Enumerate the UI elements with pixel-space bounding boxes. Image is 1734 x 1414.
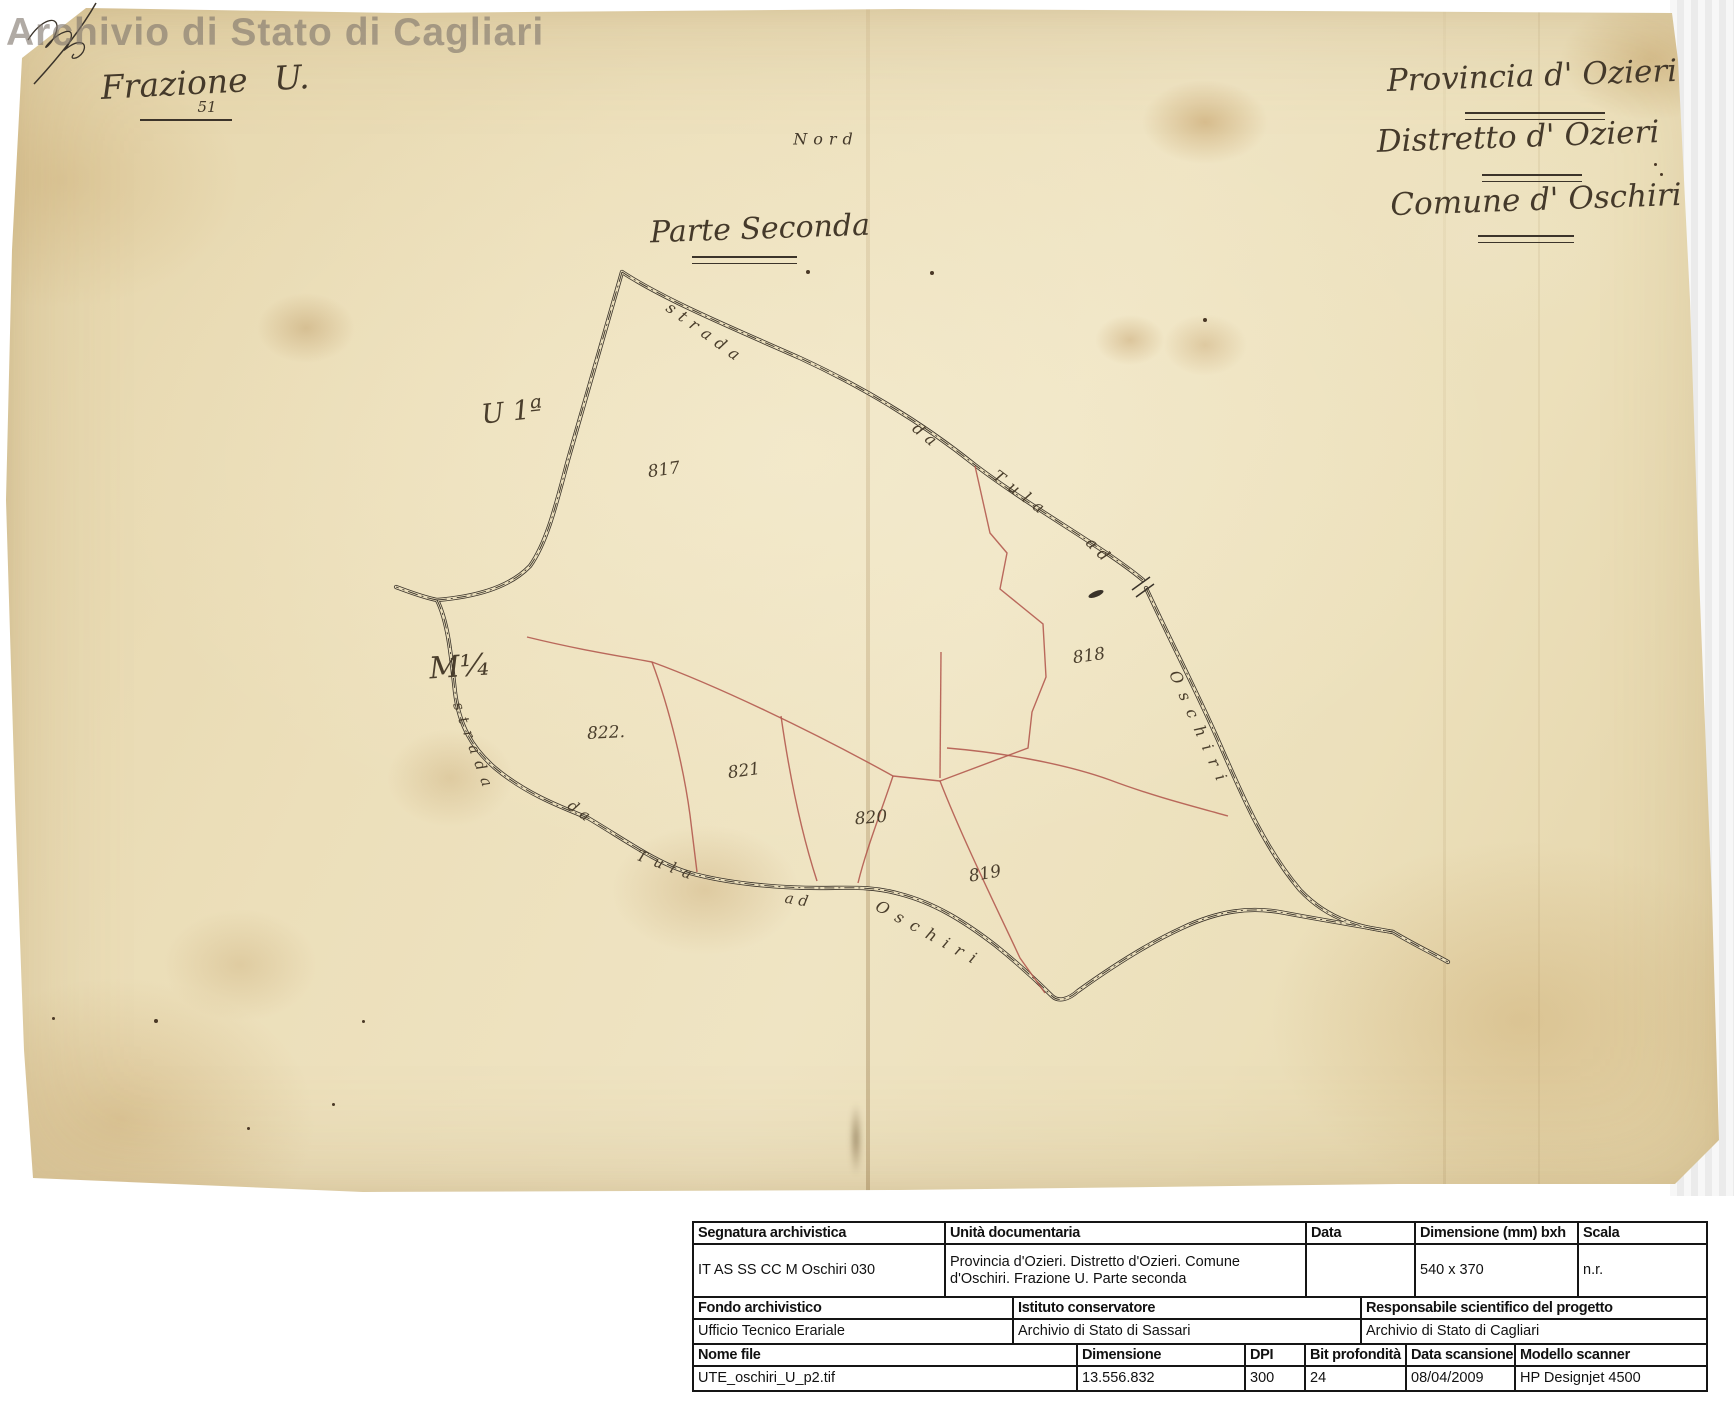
ink-speck bbox=[52, 1017, 55, 1020]
table-header-cell: Modello scanner bbox=[1514, 1345, 1710, 1365]
fold-smudge bbox=[848, 1088, 864, 1190]
cell-text: 13.556.832 bbox=[1082, 1370, 1155, 1387]
table-header-row: Segnatura archivisticaUnità documentaria… bbox=[694, 1223, 1706, 1245]
watermark-text: Archivio di Stato di Cagliari bbox=[6, 11, 544, 55]
cell-text: Unità documentaria bbox=[950, 1225, 1080, 1241]
table-value-cell: 08/04/2009 bbox=[1405, 1367, 1514, 1390]
center-fold-crease bbox=[866, 0, 870, 1196]
table-header-cell: Data bbox=[1305, 1223, 1414, 1243]
map-annotation-U1: U 1ª bbox=[480, 393, 544, 430]
table-header-cell: Bit profondità bbox=[1304, 1345, 1405, 1365]
cell-text: HP Designjet 4500 bbox=[1520, 1370, 1641, 1387]
map-sheet-paper bbox=[0, 0, 1734, 1200]
cell-text: Archivio di Stato di Sassari bbox=[1018, 1323, 1190, 1340]
table-header-cell: Nome file bbox=[694, 1345, 1076, 1365]
table-value-cell: UTE_oschiri_U_p2.tif bbox=[694, 1367, 1076, 1390]
archival-scan-page: Archivio di Stato di Cagliari Frazione U… bbox=[0, 0, 1734, 1414]
cell-text: Dimensione bbox=[1082, 1347, 1161, 1363]
parcel-number-820: 820 bbox=[854, 807, 888, 830]
table-section-1: Fondo archivisticoIstituto conservatoreR… bbox=[694, 1296, 1706, 1343]
frazione-underline bbox=[140, 119, 232, 121]
cell-text: Data bbox=[1311, 1225, 1341, 1241]
cell-text: Fondo archivistico bbox=[698, 1300, 822, 1316]
table-header-cell: Data scansione bbox=[1405, 1345, 1514, 1365]
cell-text: Data scansione bbox=[1411, 1347, 1513, 1363]
table-section-0: Segnatura archivisticaUnità documentaria… bbox=[694, 1223, 1706, 1296]
comune-underline bbox=[1478, 235, 1574, 243]
table-value-cell: HP Designjet 4500 bbox=[1514, 1367, 1710, 1390]
table-value-cell: IT AS SS CC M Oschiri 030 bbox=[694, 1245, 944, 1296]
table-header-row: Nome fileDimensioneDPIBit profonditàData… bbox=[694, 1345, 1706, 1367]
cell-text: UTE_oschiri_U_p2.tif bbox=[698, 1370, 835, 1387]
cell-text: Archivio di Stato di Cagliari bbox=[1366, 1323, 1539, 1340]
table-value-cell: 540 x 370 bbox=[1414, 1245, 1577, 1296]
cell-text: IT AS SS CC M Oschiri 030 bbox=[698, 1262, 875, 1279]
cell-text: Provincia d'Ozieri. Distretto d'Ozieri. … bbox=[950, 1254, 1301, 1288]
table-header-row: Fondo archivisticoIstituto conservatoreR… bbox=[694, 1298, 1706, 1320]
cell-text: Scala bbox=[1583, 1225, 1619, 1241]
table-value-cell: Archivio di Stato di Cagliari bbox=[1360, 1320, 1710, 1343]
table-value-row: IT AS SS CC M Oschiri 030Provincia d'Ozi… bbox=[694, 1245, 1706, 1296]
table-header-cell: Dimensione bbox=[1076, 1345, 1244, 1365]
table-header-cell: Istituto conservatore bbox=[1012, 1298, 1360, 1318]
cell-text: Segnatura archivistica bbox=[698, 1225, 846, 1241]
ink-speck bbox=[1654, 163, 1657, 166]
table-value-cell bbox=[1305, 1245, 1414, 1296]
cell-text: Ufficio Tecnico Erariale bbox=[698, 1323, 845, 1340]
cell-text: Dimensione (mm) bxh bbox=[1420, 1225, 1566, 1241]
fold-crease bbox=[1443, 0, 1446, 1196]
north-label: Nord bbox=[793, 130, 859, 149]
cell-text: Responsabile scientifico del progetto bbox=[1366, 1300, 1613, 1316]
cell-text: Bit profondità bbox=[1310, 1347, 1401, 1363]
ink-speck bbox=[930, 271, 934, 275]
cell-text: 24 bbox=[1310, 1370, 1326, 1387]
cell-text: 08/04/2009 bbox=[1411, 1370, 1484, 1387]
table-value-cell: Archivio di Stato di Sassari bbox=[1012, 1320, 1360, 1343]
table-header-cell: Scala bbox=[1577, 1223, 1710, 1243]
map-annotation-M: M¹⁄₄ bbox=[428, 647, 490, 686]
table-value-cell: 24 bbox=[1304, 1367, 1405, 1390]
ink-speck bbox=[332, 1103, 335, 1106]
table-section-2: Nome fileDimensioneDPIBit profonditàData… bbox=[694, 1343, 1706, 1390]
cell-text: 540 x 370 bbox=[1420, 1262, 1484, 1279]
ink-speck bbox=[1660, 173, 1663, 176]
metadata-table: Segnatura archivisticaUnità documentaria… bbox=[692, 1221, 1708, 1392]
table-value-cell: Ufficio Tecnico Erariale bbox=[694, 1320, 1012, 1343]
parcel-number-822: 822. bbox=[587, 722, 626, 744]
table-value-row: UTE_oschiri_U_p2.tif13.556.8323002408/04… bbox=[694, 1367, 1706, 1390]
cell-text: Nome file bbox=[698, 1347, 761, 1363]
table-value-row: Ufficio Tecnico ErarialeArchivio di Stat… bbox=[694, 1320, 1706, 1343]
cell-text: 300 bbox=[1250, 1370, 1274, 1387]
table-header-cell: Dimensione (mm) bxh bbox=[1414, 1223, 1577, 1243]
ink-speck bbox=[362, 1020, 365, 1023]
cell-text: Modello scanner bbox=[1520, 1347, 1630, 1363]
parte-seconda-underline bbox=[692, 256, 797, 264]
cell-text: n.r. bbox=[1583, 1262, 1603, 1279]
table-value-cell: 13.556.832 bbox=[1076, 1367, 1244, 1390]
cell-text: DPI bbox=[1250, 1347, 1273, 1363]
table-header-cell: DPI bbox=[1244, 1345, 1304, 1365]
table-value-cell: 300 bbox=[1244, 1367, 1304, 1390]
table-header-cell: Unità documentaria bbox=[944, 1223, 1305, 1243]
ink-speck bbox=[806, 270, 810, 274]
ink-speck bbox=[1203, 318, 1207, 322]
table-value-cell: n.r. bbox=[1577, 1245, 1710, 1296]
table-value-cell: Provincia d'Ozieri. Distretto d'Ozieri. … bbox=[944, 1245, 1305, 1296]
ink-speck bbox=[154, 1019, 158, 1023]
ink-speck bbox=[247, 1127, 250, 1130]
table-header-cell: Responsabile scientifico del progetto bbox=[1360, 1298, 1710, 1318]
table-header-cell: Fondo archivistico bbox=[694, 1298, 1012, 1318]
cell-text: Istituto conservatore bbox=[1018, 1300, 1155, 1316]
table-header-cell: Segnatura archivistica bbox=[694, 1223, 944, 1243]
frazione-number: 51 bbox=[197, 98, 216, 116]
